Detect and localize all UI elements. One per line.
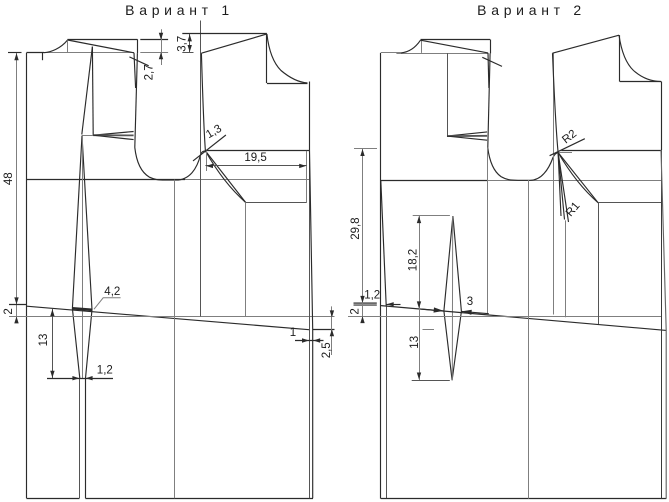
svg-text:1: 1 (290, 327, 296, 339)
svg-text:3,7: 3,7 (177, 36, 189, 52)
svg-text:1,2: 1,2 (364, 290, 380, 302)
svg-text:13: 13 (38, 334, 50, 347)
svg-text:18,2: 18,2 (408, 249, 420, 271)
svg-text:2,7: 2,7 (144, 64, 156, 80)
svg-text:2: 2 (3, 308, 15, 314)
svg-text:2: 2 (350, 308, 362, 314)
svg-text:1,2: 1,2 (97, 365, 113, 377)
svg-text:13: 13 (409, 336, 421, 349)
svg-text:29,8: 29,8 (350, 217, 362, 239)
svg-text:19,5: 19,5 (244, 152, 266, 164)
svg-text:4,2: 4,2 (104, 286, 120, 298)
svg-text:48: 48 (3, 172, 15, 185)
svg-text:3: 3 (467, 296, 473, 308)
svg-text:2,5: 2,5 (321, 342, 333, 358)
svg-text:Вариант 1: Вариант 1 (125, 2, 234, 18)
svg-text:Вариант 2: Вариант 2 (477, 2, 586, 18)
